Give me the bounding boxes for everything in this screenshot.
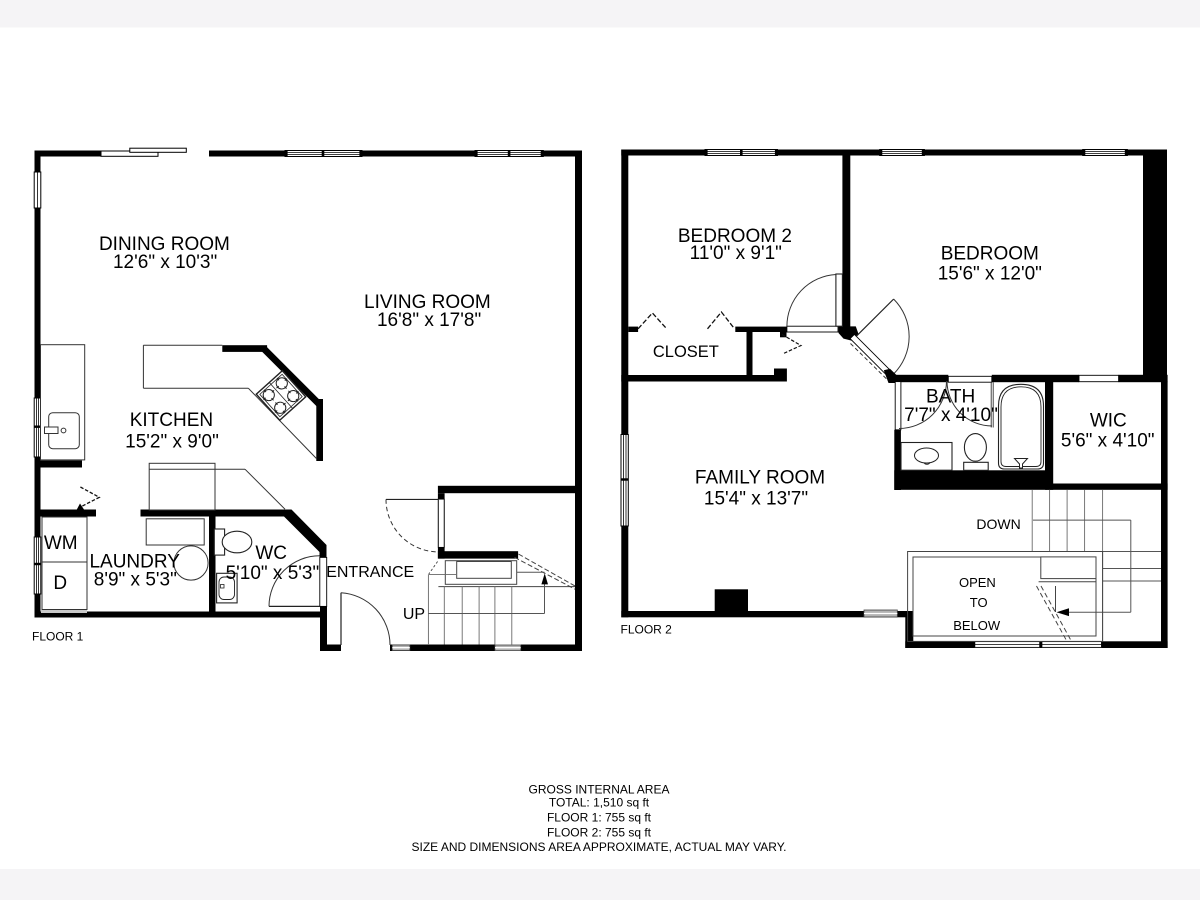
svg-text:FLOOR 2: FLOOR 2 (621, 623, 673, 637)
svg-text:OPEN: OPEN (959, 575, 996, 590)
svg-text:BEDROOM: BEDROOM (941, 244, 1039, 265)
svg-text:8'9" x 5'3": 8'9" x 5'3" (94, 570, 177, 591)
svg-text:FLOOR 1: FLOOR 1 (32, 630, 84, 644)
svg-text:16'8" x 17'8": 16'8" x 17'8" (377, 310, 481, 331)
svg-text:GROSS INTERNAL AREA: GROSS INTERNAL AREA (529, 782, 670, 796)
svg-text:FAMILY ROOM: FAMILY ROOM (695, 468, 825, 489)
svg-text:ENTRANCE: ENTRANCE (326, 564, 414, 581)
svg-text:WM: WM (44, 533, 78, 554)
svg-text:5'10" x 5'3": 5'10" x 5'3" (226, 563, 320, 584)
svg-text:KITCHEN: KITCHEN (130, 410, 213, 431)
svg-text:UP: UP (403, 606, 425, 623)
svg-text:15'4" x 13'7": 15'4" x 13'7" (704, 489, 808, 510)
svg-text:D: D (53, 573, 67, 594)
svg-text:FLOOR 2: 755 sq ft: FLOOR 2: 755 sq ft (547, 826, 652, 840)
svg-text:7'7" x 4'10": 7'7" x 4'10" (904, 405, 998, 426)
svg-text:BELOW: BELOW (953, 618, 1001, 633)
svg-text:5'6" x 4'10": 5'6" x 4'10" (1061, 431, 1155, 452)
svg-text:11'0" x 9'1": 11'0" x 9'1" (690, 243, 782, 264)
svg-text:12'6" x 10'3": 12'6" x 10'3" (113, 252, 217, 273)
svg-text:DOWN: DOWN (976, 516, 1020, 532)
svg-text:WC: WC (255, 543, 287, 564)
svg-text:WIC: WIC (1090, 411, 1127, 432)
svg-text:CLOSET: CLOSET (653, 343, 719, 361)
svg-text:TOTAL: 1,510 sq ft: TOTAL: 1,510 sq ft (549, 796, 650, 810)
svg-text:SIZE AND DIMENSIONS AREA APPRO: SIZE AND DIMENSIONS AREA APPROXIMATE, AC… (412, 840, 787, 854)
svg-text:TO: TO (970, 595, 988, 610)
svg-text:15'6" x 12'0": 15'6" x 12'0" (938, 264, 1042, 285)
svg-text:FLOOR 1: 755 sq ft: FLOOR 1: 755 sq ft (547, 811, 652, 825)
svg-text:15'2" x 9'0": 15'2" x 9'0" (125, 431, 219, 452)
